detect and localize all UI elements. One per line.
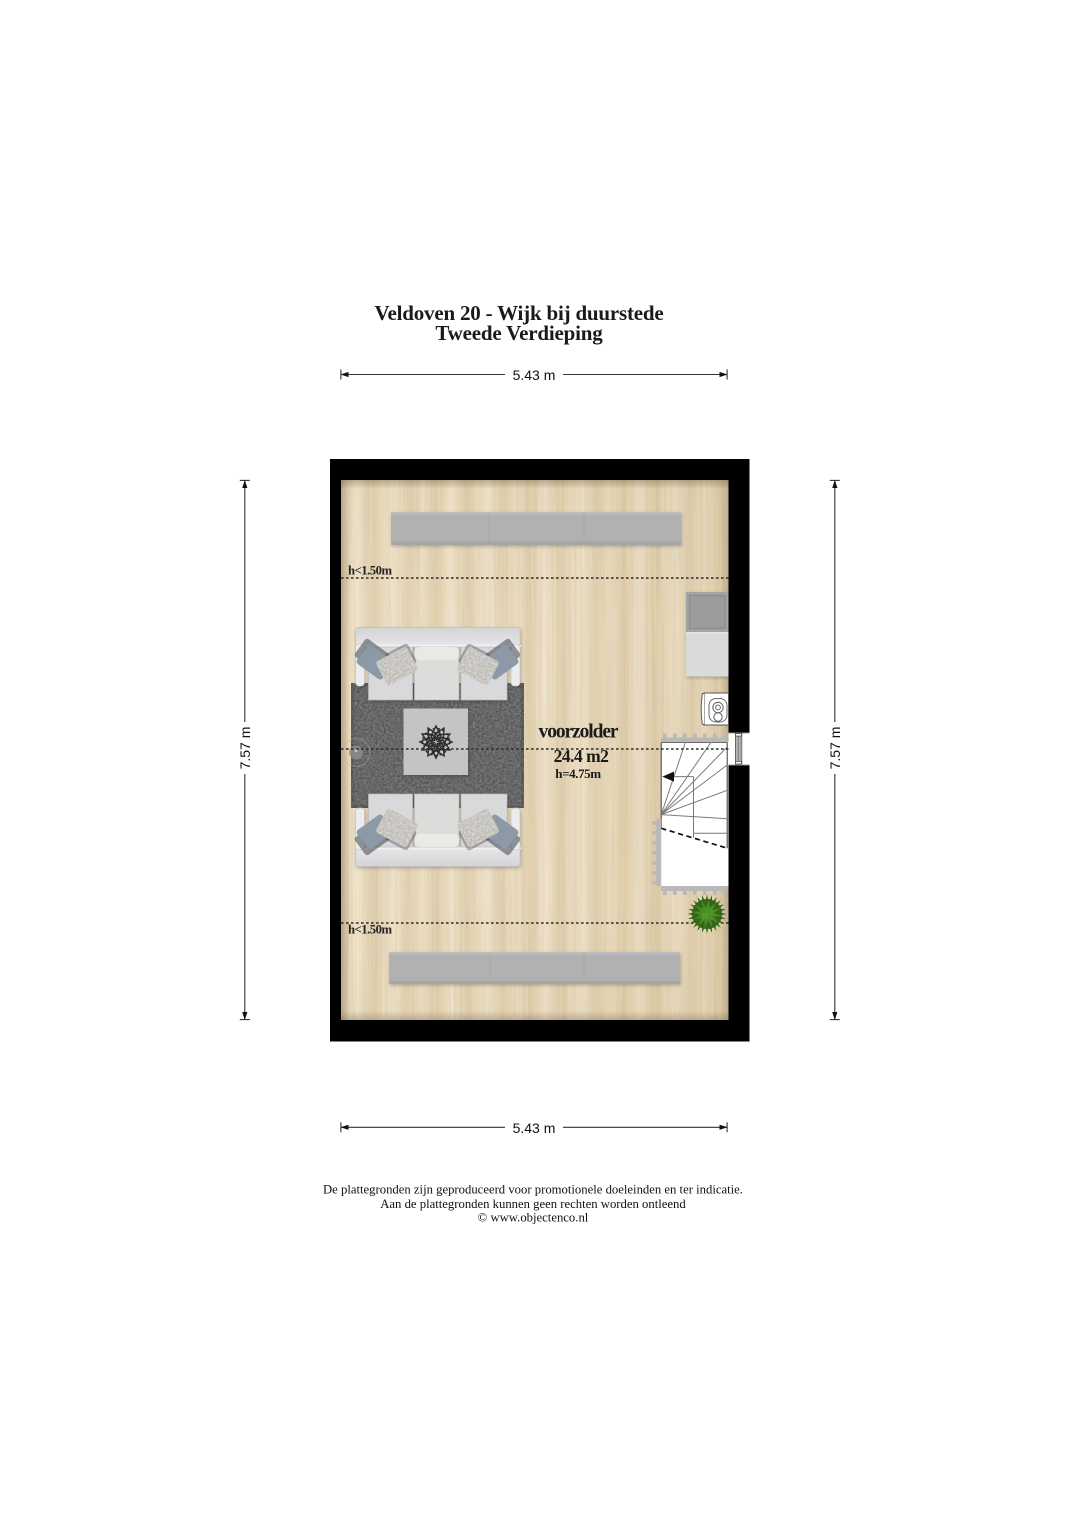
- svg-text:h=4.75m: h=4.75m: [555, 766, 601, 781]
- svg-text:7.57 m: 7.57 m: [827, 727, 843, 770]
- svg-text:Tweede Verdieping: Tweede Verdieping: [435, 321, 603, 345]
- svg-text:h<1.50m: h<1.50m: [348, 923, 392, 937]
- svg-text:5.43 m: 5.43 m: [513, 367, 556, 383]
- svg-text:7.57 m: 7.57 m: [237, 727, 253, 770]
- svg-text:h<1.50m: h<1.50m: [348, 564, 392, 578]
- svg-text:Aan de plattegronden kunnen ge: Aan de plattegronden kunnen geen rechten…: [380, 1197, 686, 1211]
- svg-text:© www.objectenco.nl: © www.objectenco.nl: [478, 1211, 589, 1225]
- svg-text:voorzolder: voorzolder: [539, 722, 619, 743]
- svg-text:De plattegronden zijn geproduc: De plattegronden zijn geproduceerd voor …: [323, 1183, 743, 1197]
- svg-text:5.43 m: 5.43 m: [513, 1120, 556, 1136]
